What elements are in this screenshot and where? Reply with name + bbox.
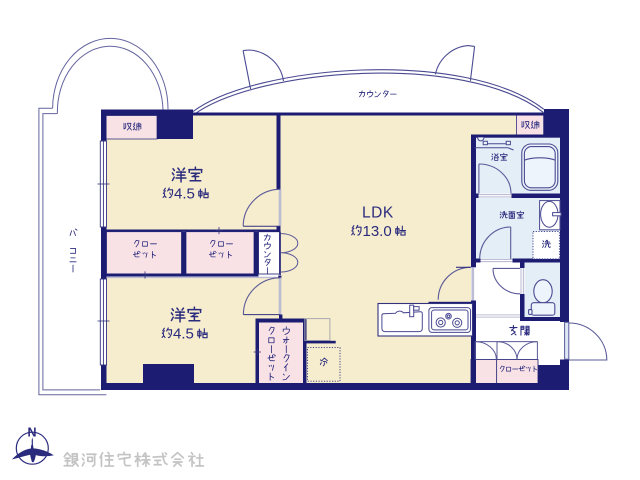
svg-text:LDK: LDK: [362, 204, 394, 221]
svg-text:13.0: 13.0: [363, 223, 392, 240]
svg-text:N: N: [27, 426, 36, 440]
svg-text:4.5: 4.5: [173, 326, 194, 343]
svg-text:4.5: 4.5: [174, 186, 195, 203]
